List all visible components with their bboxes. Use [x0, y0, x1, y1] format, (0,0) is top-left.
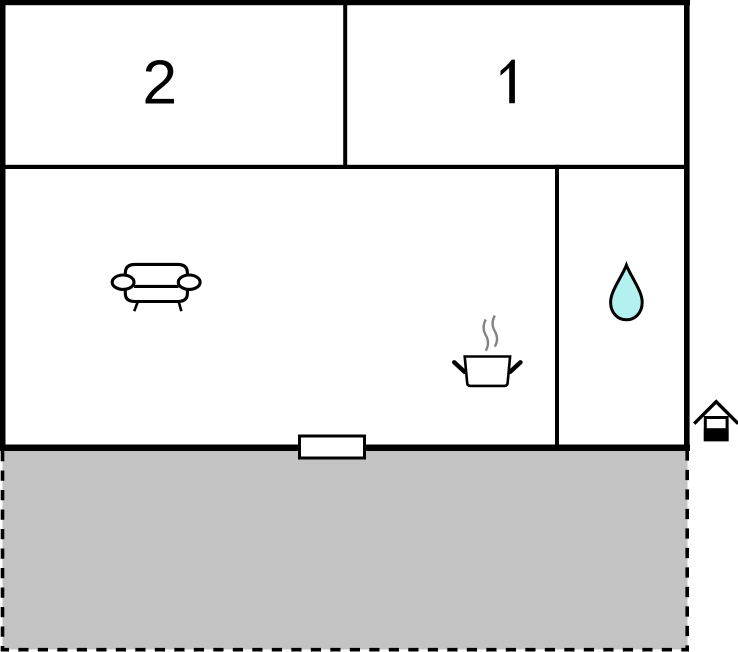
svg-text:2: 2 — [142, 48, 177, 118]
